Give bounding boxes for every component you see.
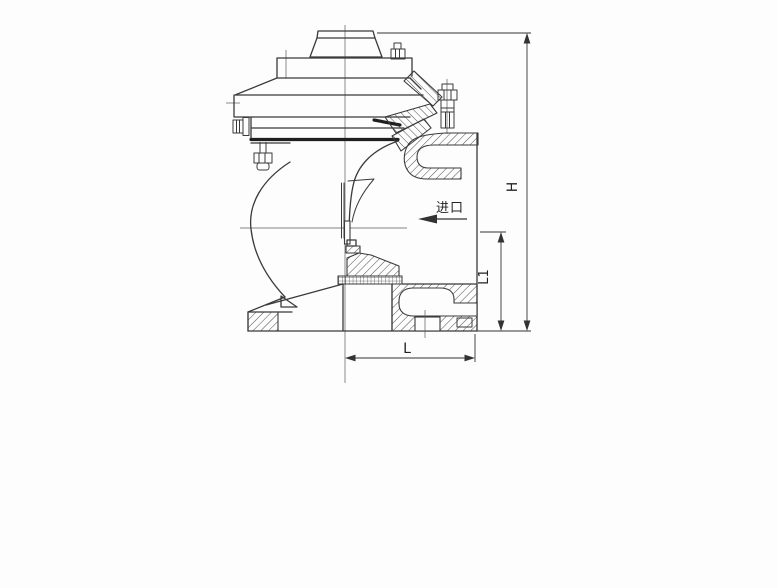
outlet-flange-foot: [248, 312, 292, 331]
dimension-l1: L1: [477, 232, 506, 331]
valve-stem: [342, 183, 351, 244]
dimension-l: L: [345, 334, 475, 362]
valve-drawing-page: 进口 H L1 L: [0, 0, 778, 588]
valve-bonnet: [233, 31, 423, 170]
valve-disc-assembly: [338, 240, 402, 284]
body-corner-block: [392, 284, 477, 338]
bonnet-side-bolt: [233, 118, 249, 136]
inlet-annotation: 进口: [418, 201, 467, 224]
dimension-l-label: L: [403, 341, 411, 357]
inlet-label: 进口: [436, 201, 464, 216]
flange-bolt: [438, 79, 457, 134]
flange-stud-bolt: [254, 142, 272, 170]
bonnet-top-bolt: [391, 43, 405, 59]
dimension-l1-label: L1: [477, 269, 492, 285]
seat-gasket-mesh: [338, 276, 402, 284]
dimension-h-label: H: [505, 182, 521, 193]
valve-technical-drawing: 进口 H L1 L: [0, 0, 778, 588]
